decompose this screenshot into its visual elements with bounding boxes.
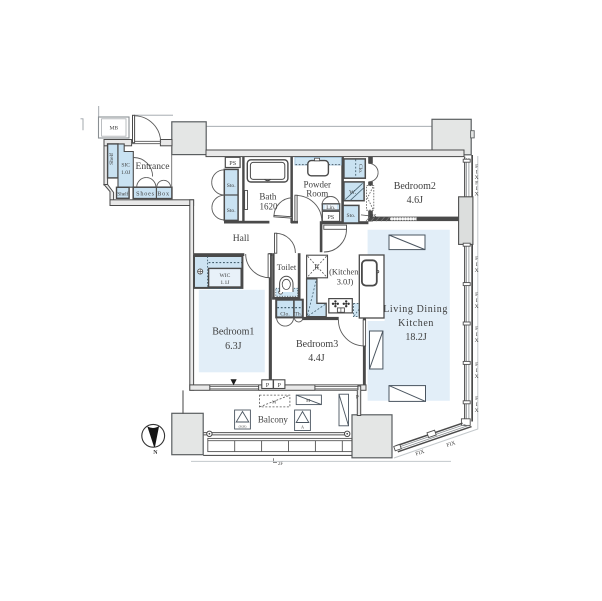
svg-text:6.3J: 6.3J bbox=[225, 341, 242, 352]
svg-text:Shelf: Shelf bbox=[108, 153, 115, 165]
svg-text:Bedroom2: Bedroom2 bbox=[394, 181, 436, 192]
svg-text:1.1J: 1.1J bbox=[220, 280, 230, 286]
svg-text:Bedroom1: Bedroom1 bbox=[212, 327, 254, 338]
svg-text:(Kitchen: (Kitchen bbox=[329, 268, 359, 277]
svg-text:Toilet: Toilet bbox=[277, 263, 297, 272]
svg-text:1620: 1620 bbox=[260, 202, 279, 212]
svg-text:W.: W. bbox=[349, 189, 356, 196]
svg-text:N: N bbox=[153, 450, 158, 456]
svg-text:Shoes Box: Shoes Box bbox=[136, 191, 170, 198]
svg-text:Clo.: Clo. bbox=[280, 311, 290, 317]
svg-text:X: X bbox=[475, 304, 479, 310]
svg-text:PS: PS bbox=[370, 214, 376, 220]
svg-text:P: P bbox=[266, 382, 270, 389]
svg-text:Living Dining: Living Dining bbox=[383, 304, 448, 315]
svg-text:X: X bbox=[475, 268, 479, 274]
svg-text:X: X bbox=[475, 338, 479, 344]
svg-text:A: A bbox=[301, 424, 304, 429]
svg-text:M: M bbox=[272, 400, 276, 405]
svg-text:3.0J): 3.0J) bbox=[337, 278, 354, 287]
svg-text:M: M bbox=[306, 398, 310, 403]
svg-text:MB: MB bbox=[109, 126, 118, 132]
svg-text:WIC: WIC bbox=[219, 273, 230, 279]
svg-text:Hall: Hall bbox=[233, 233, 250, 244]
svg-text:Sto.: Sto. bbox=[227, 183, 236, 189]
svg-text:R: R bbox=[314, 263, 319, 271]
svg-text:X: X bbox=[475, 374, 479, 380]
svg-text:Kitchen: Kitchen bbox=[398, 318, 434, 329]
svg-text:Shelf: Shelf bbox=[117, 190, 128, 197]
svg-text:1.0J: 1.0J bbox=[121, 170, 131, 176]
svg-text:Clo.: Clo. bbox=[357, 164, 363, 174]
svg-text:Bath: Bath bbox=[259, 192, 276, 202]
svg-text:Bedroom3: Bedroom3 bbox=[296, 339, 338, 350]
svg-text:4.6J: 4.6J bbox=[407, 195, 424, 206]
svg-text:PS: PS bbox=[327, 214, 334, 221]
svg-text:X: X bbox=[475, 408, 479, 414]
svg-text:Room: Room bbox=[306, 189, 328, 199]
svg-text:18.2J: 18.2J bbox=[405, 332, 427, 343]
svg-text:P: P bbox=[356, 394, 359, 400]
svg-text:PS: PS bbox=[229, 160, 236, 167]
svg-text:Th.: Th. bbox=[294, 311, 302, 317]
svg-text:4.4J: 4.4J bbox=[308, 353, 325, 364]
svg-text:SIC: SIC bbox=[121, 162, 130, 168]
svg-text:Entrance: Entrance bbox=[135, 161, 169, 172]
svg-text:P: P bbox=[277, 382, 281, 389]
svg-text:Lin.: Lin. bbox=[326, 205, 336, 211]
svg-text:X: X bbox=[475, 192, 479, 198]
svg-text:(SGR): (SGR) bbox=[239, 424, 247, 428]
svg-text:Sto.: Sto. bbox=[346, 213, 355, 219]
svg-text:2F: 2F bbox=[278, 462, 283, 467]
svg-text:Balcony: Balcony bbox=[258, 415, 288, 425]
svg-text:Sto.: Sto. bbox=[227, 208, 236, 214]
